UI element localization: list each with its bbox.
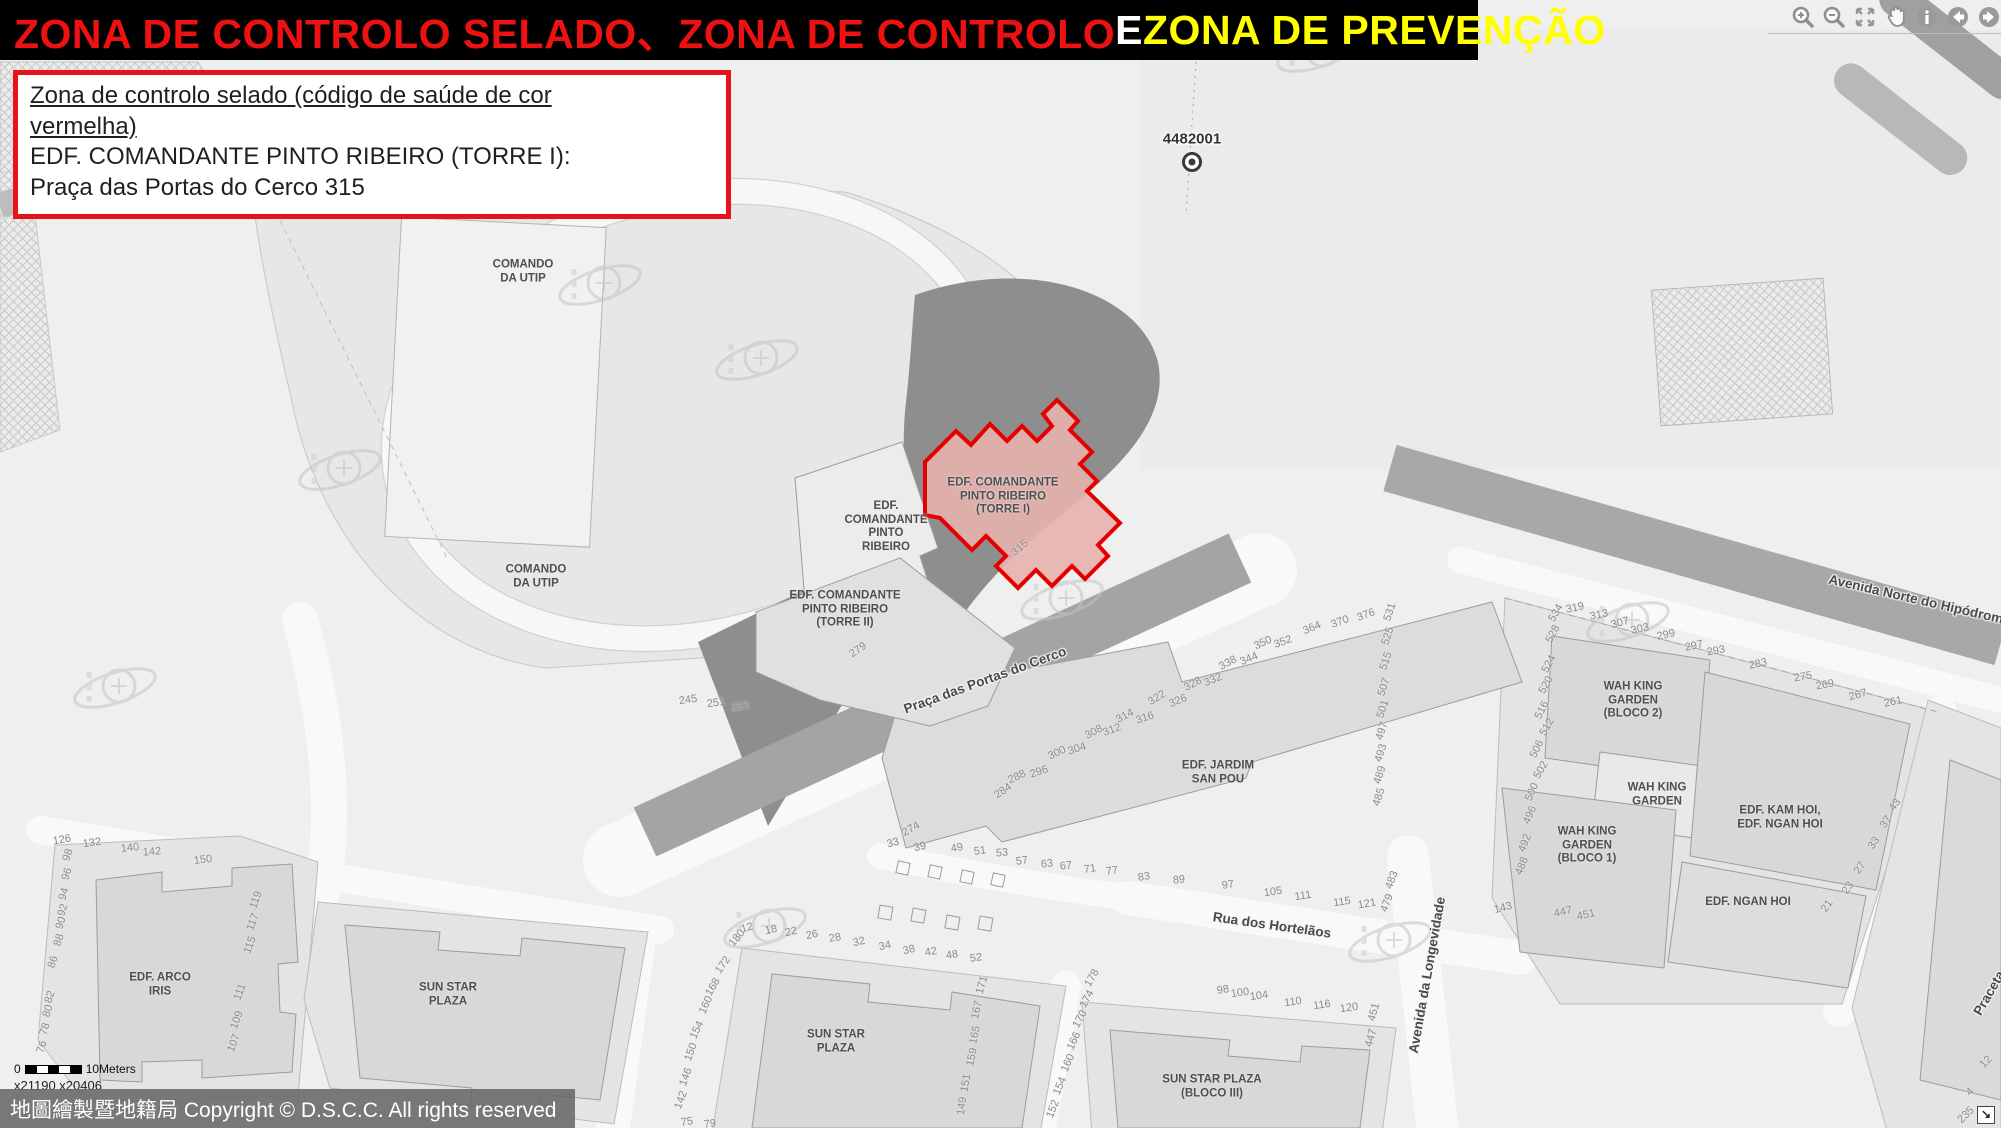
house-number: 150: [193, 853, 213, 867]
house-number: 167: [969, 1000, 985, 1020]
info-address: Praça das Portas do Cerco 315: [30, 173, 714, 204]
house-number: 77: [1105, 864, 1119, 878]
map-toolbar: [1790, 4, 2001, 30]
house-number: 146: [677, 1066, 695, 1087]
house-number: 493: [1372, 742, 1389, 763]
zoom-out-icon[interactable]: [1821, 4, 1847, 30]
house-number: 269: [1815, 677, 1835, 692]
house-number: 149: [955, 1096, 969, 1116]
house-number: 111: [232, 982, 249, 1002]
house-number: 350: [1252, 634, 1274, 653]
house-number: 515: [1377, 650, 1394, 671]
house-number: 67: [1059, 859, 1072, 872]
building-label: COMANDODA UTIP: [506, 563, 567, 590]
street-label: Praceta: [1970, 968, 2001, 1018]
house-number: 528: [1543, 623, 1562, 645]
building-label: SUN STARPLAZA: [807, 1028, 865, 1055]
scale-bar: 0 10Meters: [14, 1062, 136, 1076]
house-number: 107: [225, 1032, 243, 1053]
house-number: 338: [1217, 653, 1239, 672]
house-number: 32: [852, 935, 866, 949]
house-number: 165: [967, 1025, 983, 1045]
house-number: 160: [697, 994, 716, 1016]
house-number: 140: [120, 841, 140, 855]
house-number: 28: [828, 931, 842, 945]
house-number: 152: [1044, 1098, 1062, 1120]
house-number: 451: [1366, 1002, 1382, 1023]
house-number: 171: [974, 975, 990, 996]
copyright-bar: 地圖繪製暨地籍局 Copyright © D.S.C.C. All rights…: [0, 1089, 575, 1128]
house-number: 525: [1379, 625, 1396, 646]
building-label: EDF. KAM HOI,EDF. NGAN HOI: [1737, 804, 1823, 831]
house-number: 531: [1381, 601, 1398, 622]
house-number: 328: [1182, 674, 1204, 693]
house-number: 488: [1513, 855, 1531, 877]
house-number: 304: [1066, 740, 1087, 757]
house-number: 89: [1172, 873, 1185, 886]
house-number: 496: [1521, 804, 1539, 826]
house-number: 376: [1355, 606, 1376, 624]
house-number: 22: [784, 925, 798, 939]
pan-icon[interactable]: [1883, 4, 1909, 30]
house-number: 143: [1493, 900, 1514, 916]
copyright-text: 地圖繪製暨地籍局 Copyright © D.S.C.C. All rights…: [10, 1094, 556, 1124]
house-number: 352: [1272, 633, 1293, 651]
house-number: 88: [51, 932, 66, 947]
house-number: 307: [1610, 615, 1631, 631]
building-label: EDF. COMANDANTEPINTO RIBEIRO(TORRE I): [947, 477, 1058, 518]
house-number: 300: [1046, 744, 1068, 763]
house-number: 492: [1516, 832, 1534, 854]
bullseye-marker-icon[interactable]: [1181, 151, 1203, 173]
house-number: 75: [680, 1115, 694, 1129]
house-number: 288: [1006, 768, 1028, 787]
house-number: 151: [958, 1073, 973, 1093]
house-number: 38: [902, 943, 916, 957]
house-number: 160: [1059, 1052, 1078, 1074]
house-number: 279: [847, 640, 869, 660]
scale-zero: 0: [14, 1062, 21, 1076]
house-number: 534: [1546, 602, 1566, 624]
info-building: EDF. COMANDANTE PINTO RIBEIRO (TORRE I):: [30, 142, 714, 173]
house-number: 94: [56, 886, 71, 901]
house-number: 115: [241, 935, 258, 956]
house-number: 447: [1363, 1028, 1379, 1049]
house-number: 267: [1848, 687, 1869, 703]
house-number: 120: [1339, 1001, 1359, 1015]
house-number: 245: [678, 693, 698, 707]
house-number: 275: [1793, 669, 1813, 684]
house-number: 142: [142, 845, 161, 858]
house-number: 447: [1553, 904, 1573, 920]
house-number: 316: [1134, 709, 1155, 726]
house-number: 172: [713, 954, 733, 976]
house-number: 80: [40, 1003, 55, 1018]
house-number: 166: [1065, 1030, 1084, 1052]
house-number: 52: [969, 951, 983, 965]
house-number: 53: [995, 846, 1008, 859]
house-number: 261: [1883, 694, 1903, 710]
toolbar-divider: [1768, 33, 2001, 34]
building-label: WAH KINGGARDEN(BLOCO 1): [1558, 826, 1617, 867]
house-number: 97: [1221, 878, 1235, 892]
house-number: 34: [878, 939, 892, 953]
previous-extent-icon[interactable]: [1945, 4, 1971, 30]
house-number: 303: [1630, 621, 1650, 637]
house-number: 100: [1230, 986, 1250, 1000]
bottom-margin: [0, 1128, 2001, 1134]
house-number: 479: [1378, 892, 1396, 913]
house-number: 119: [247, 890, 264, 911]
building-label: EDF. NGAN HOI: [1705, 896, 1791, 910]
building-label: WAH KINGGARDEN(BLOCO 2): [1604, 681, 1663, 722]
house-number: 27: [1852, 860, 1869, 877]
house-number: 506: [1528, 738, 1547, 760]
house-number: 109: [228, 1009, 246, 1030]
house-number: 500: [1523, 781, 1541, 803]
house-number: 274: [900, 819, 922, 839]
zoom-extent-icon[interactable]: [1852, 4, 1878, 30]
house-number: 126: [52, 832, 72, 847]
building-label: WAH KINGGARDEN: [1628, 781, 1687, 808]
house-number: 485: [1370, 786, 1387, 807]
house-number: 174: [1077, 988, 1096, 1010]
house-number: 132: [82, 836, 102, 850]
house-number: 293: [1706, 643, 1726, 658]
house-number: 48: [945, 948, 959, 962]
house-number: 98: [1216, 983, 1230, 997]
house-number: 43: [1887, 797, 1904, 814]
house-number: 501: [1374, 698, 1391, 719]
house-number: 121: [1357, 896, 1377, 911]
house-number: 142: [672, 1089, 690, 1110]
house-number: 170: [1070, 1008, 1089, 1030]
house-number: 520: [1536, 674, 1555, 696]
house-number: 115: [1332, 895, 1351, 909]
house-number: 76: [34, 1039, 49, 1054]
info-line1a: Zona de controlo selado (código de saúde…: [30, 82, 552, 109]
banner-text-red: ZONA DE CONTROLO SELADO、ZONA DE CONTROLO: [14, 0, 1115, 60]
house-number: 33: [886, 836, 901, 851]
house-number: 364: [1301, 619, 1323, 637]
house-number: 111: [1294, 889, 1312, 903]
house-number: 497: [1373, 720, 1390, 741]
house-number: 489: [1371, 764, 1388, 785]
marker-label: 4482001: [1163, 131, 1221, 148]
street-label: Praça das Portas do Cerco: [902, 644, 1069, 717]
identify-icon[interactable]: [1914, 4, 1940, 30]
house-number: 63: [1040, 857, 1053, 870]
house-number: 235: [1955, 1104, 1976, 1125]
house-number: 57: [1015, 854, 1029, 868]
street-label: Rua dos Hortelãos: [1212, 909, 1332, 940]
house-number: 71: [1083, 862, 1097, 876]
house-number: 319: [1565, 600, 1585, 616]
house-number: 12: [1977, 1053, 1994, 1070]
house-number: 154: [1051, 1075, 1069, 1097]
house-number: 104: [1249, 989, 1269, 1003]
house-number: 78: [37, 1021, 52, 1036]
building-label: EDF. COMANDANTEPINTO RIBEIRO(TORRE II): [789, 590, 900, 631]
house-number: 105: [1263, 885, 1283, 899]
building-label: EDF.COMANDANTEPINTORIBEIRO: [844, 500, 927, 554]
house-number: 98: [60, 847, 75, 862]
house-number: 18: [764, 923, 778, 937]
building-label: SUN STARPLAZA: [419, 981, 477, 1008]
house-number: 51: [973, 844, 987, 858]
house-number: 502: [1531, 759, 1551, 781]
house-number: 116: [1312, 998, 1331, 1012]
house-number: 39: [913, 840, 927, 854]
house-number: 82: [42, 989, 57, 1004]
map-viewer: 3152792452512532842882963003043083123143…: [0, 0, 2001, 1134]
house-number: 370: [1329, 613, 1350, 631]
info-line1b: vermelha): [30, 113, 137, 140]
house-number: 283: [1748, 656, 1768, 672]
sealed-zone-info-box: Zona de controlo selado (código de saúde…: [13, 70, 731, 219]
house-number: 110: [1283, 995, 1302, 1009]
house-number: 315: [1009, 538, 1031, 559]
house-number: 86: [45, 954, 60, 969]
house-number: 178: [1082, 967, 1102, 989]
house-number: 4: [1964, 1086, 1977, 1099]
banner-text-white: E: [1115, 7, 1143, 54]
title-banner: ZONA DE CONTROLO SELADO、ZONA DE CONTROLO…: [0, 0, 1478, 60]
house-number: 332: [1202, 671, 1224, 689]
house-number: 296: [1028, 763, 1049, 780]
house-number: 49: [950, 841, 964, 855]
house-number: 322: [1146, 688, 1168, 708]
house-number: 344: [1238, 650, 1260, 668]
house-number: 96: [59, 866, 74, 881]
zoom-in-icon[interactable]: [1790, 4, 1816, 30]
banner-text-yellow: ZONA DE PREVENÇÃO: [1143, 7, 1606, 54]
house-number: 326: [1167, 692, 1189, 710]
building-label: SUN STAR PLAZA(BLOCO III): [1162, 1073, 1261, 1100]
house-number: 90: [53, 915, 68, 930]
house-number: 253: [730, 700, 750, 714]
building-label: EDF. JARDIMSAN POU: [1182, 759, 1254, 786]
house-number: 42: [924, 945, 938, 959]
house-number: 314: [1114, 706, 1136, 725]
house-number: 251: [706, 696, 726, 710]
house-number: 150: [682, 1041, 700, 1062]
building-label: COMANDODA UTIP: [493, 258, 554, 285]
house-number: 308: [1083, 722, 1105, 741]
house-number: 21: [1819, 898, 1836, 915]
house-number: 507: [1375, 676, 1392, 697]
street-label: Avenida Norte do Hipódromo: [1827, 572, 2001, 629]
house-number: 524: [1539, 653, 1558, 675]
house-number: 483: [1383, 869, 1401, 890]
house-number: 37: [1878, 814, 1895, 831]
house-number: 297: [1684, 638, 1704, 654]
next-extent-icon[interactable]: [1976, 4, 2001, 30]
house-number: 33: [1866, 835, 1883, 852]
house-number: 451: [1576, 907, 1596, 923]
house-number: 313: [1589, 607, 1609, 623]
house-number: 83: [1137, 870, 1151, 884]
house-number: 159: [964, 1047, 980, 1067]
street-label: Avenida da Longevidade: [1406, 896, 1448, 1055]
scale-distance: 10Meters: [86, 1062, 136, 1076]
building-label: EDF. ARCOIRIS: [129, 971, 191, 998]
house-number: 154: [688, 1019, 707, 1041]
house-number: 26: [805, 928, 819, 942]
house-number: 23: [1840, 880, 1857, 897]
house-number: 117: [244, 912, 261, 933]
resize-corner-icon[interactable]: ↘: [1977, 1106, 1995, 1124]
scale-bar-segments: [25, 1065, 82, 1074]
house-number: 299: [1656, 627, 1676, 643]
